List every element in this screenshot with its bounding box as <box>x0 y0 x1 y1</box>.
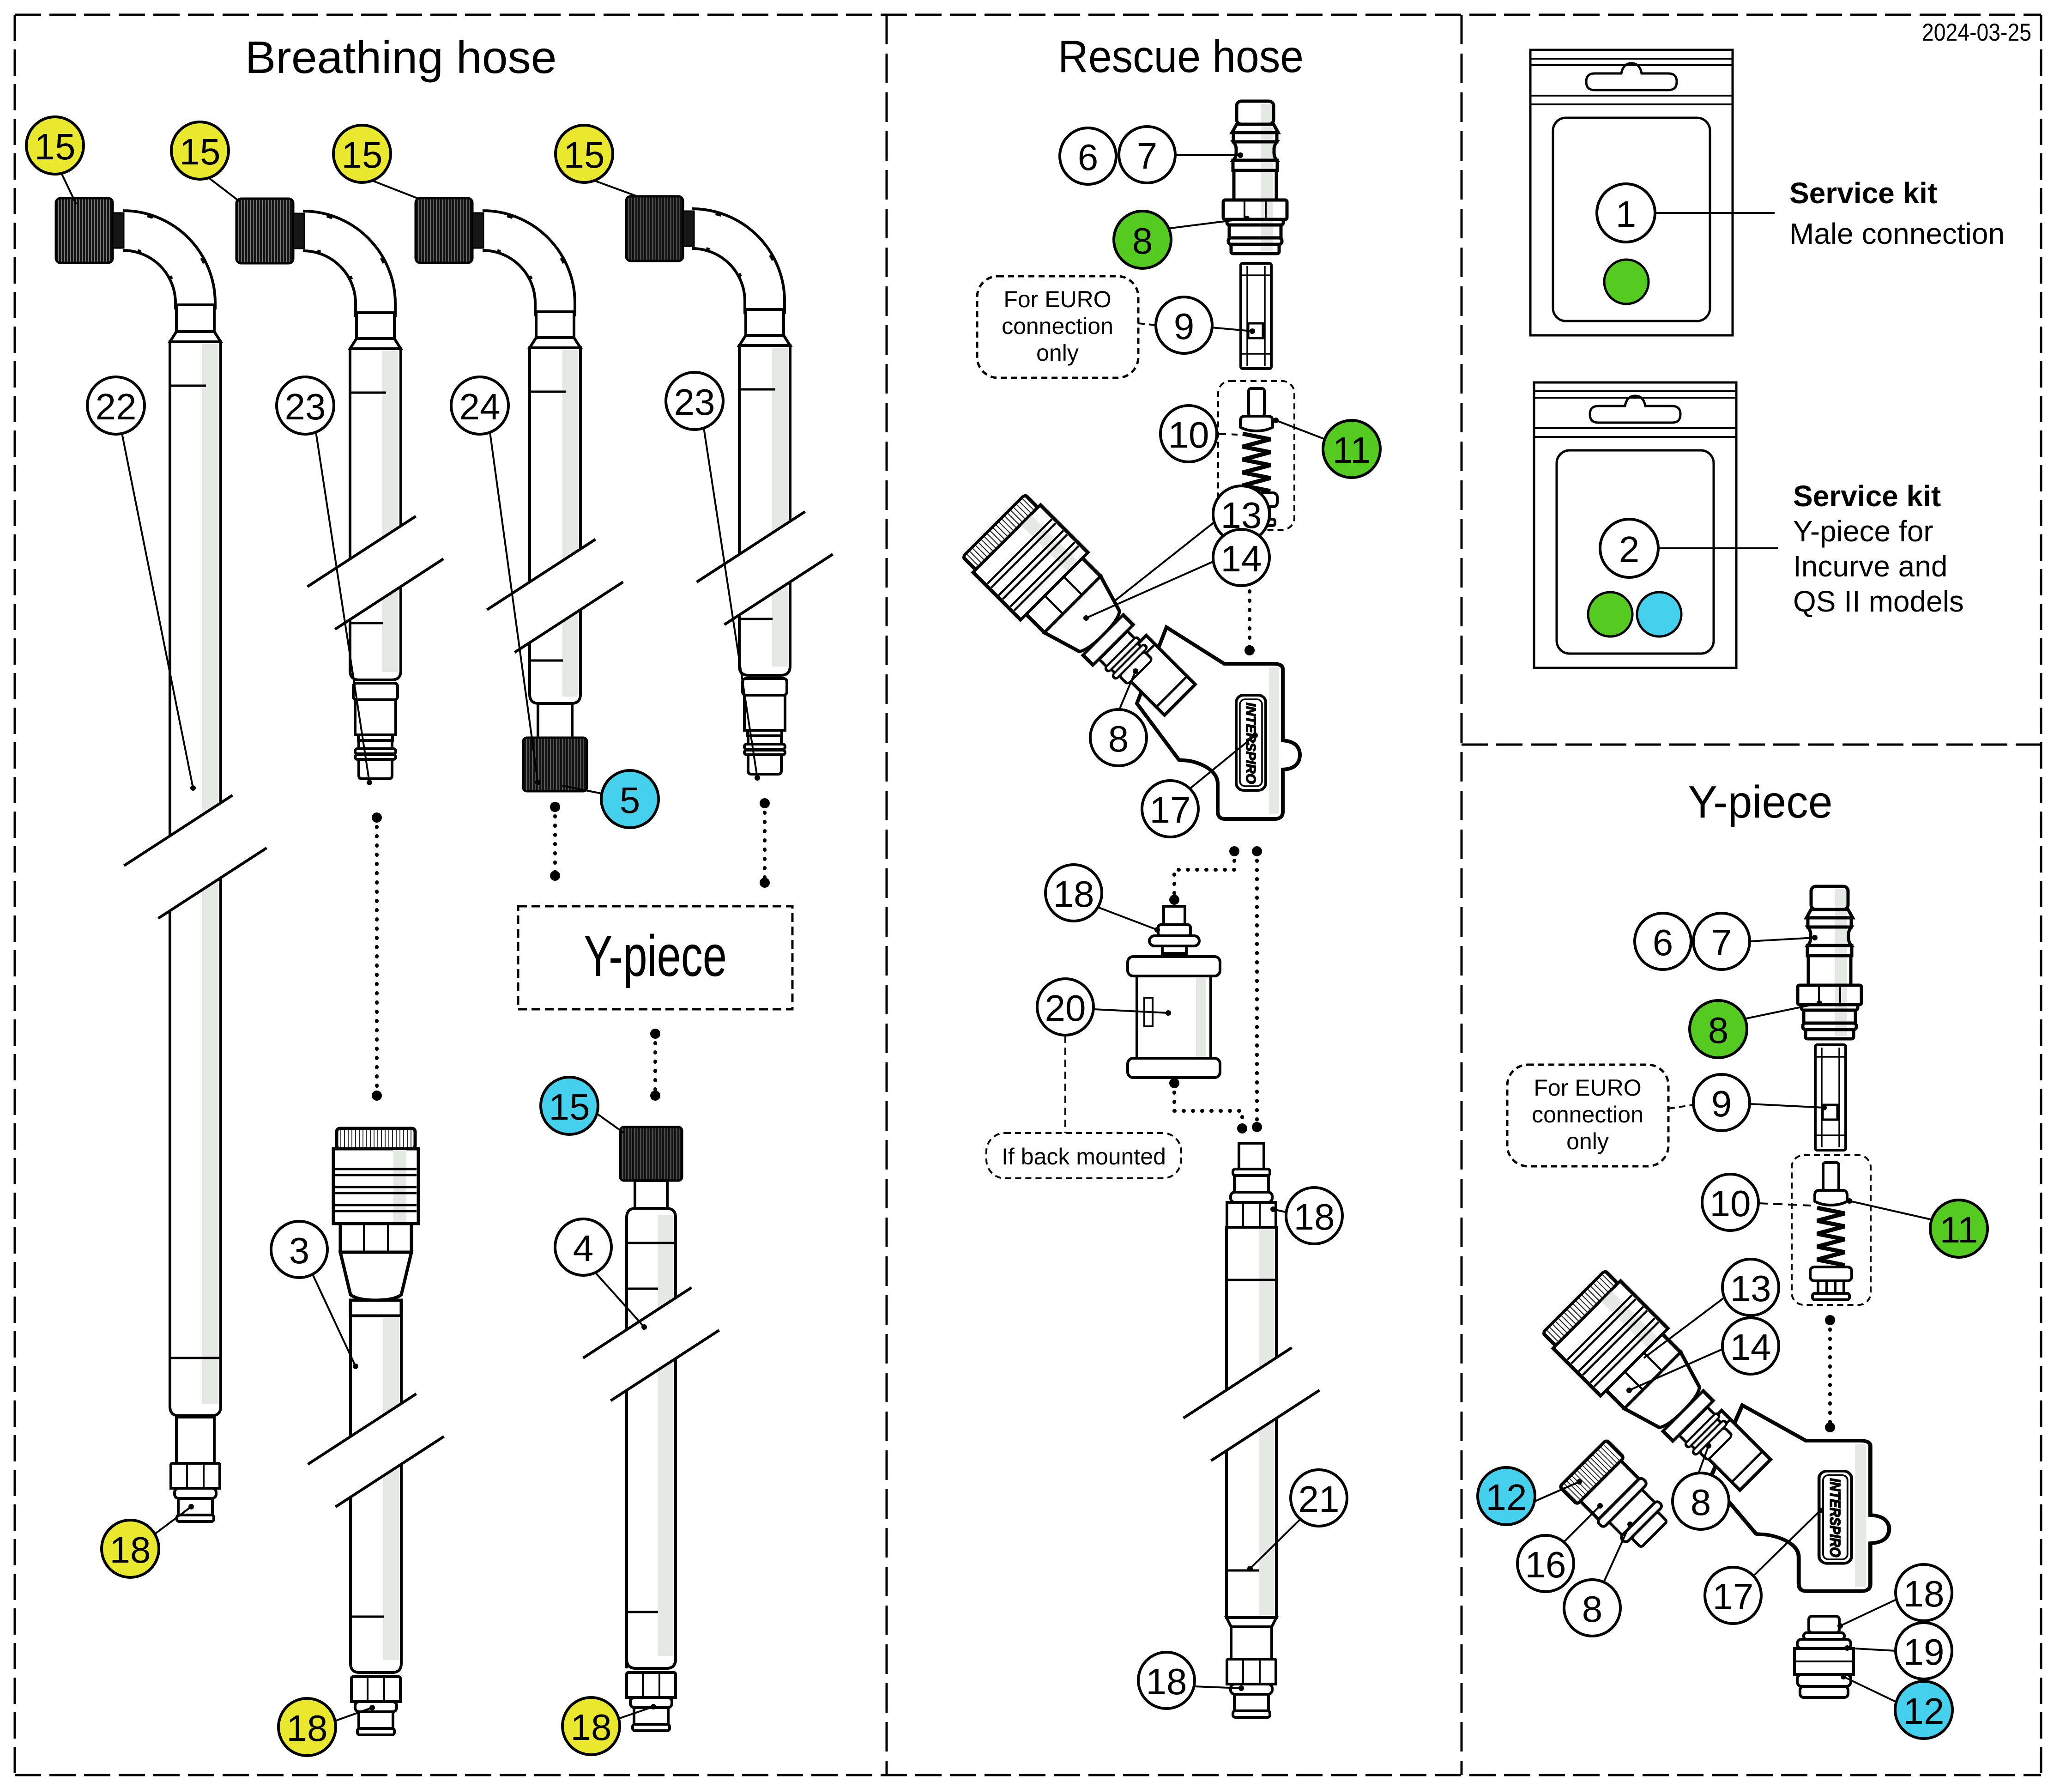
svg-text:23: 23 <box>674 382 715 423</box>
svg-text:15: 15 <box>35 126 76 167</box>
svg-text:18: 18 <box>1146 1661 1187 1702</box>
svg-text:7: 7 <box>1711 922 1732 963</box>
svg-text:Rescue hose: Rescue hose <box>1058 31 1304 82</box>
svg-text:18: 18 <box>571 1707 612 1748</box>
svg-text:18: 18 <box>1903 1573 1945 1614</box>
svg-text:5: 5 <box>620 780 640 821</box>
svg-text:Service kit: Service kit <box>1789 176 1937 210</box>
svg-text:8: 8 <box>1132 220 1153 261</box>
svg-text:14: 14 <box>1221 538 1262 579</box>
svg-text:15: 15 <box>342 134 383 176</box>
svg-text:12: 12 <box>1486 1477 1527 1518</box>
svg-text:only: only <box>1036 340 1079 366</box>
svg-text:18: 18 <box>1053 873 1094 915</box>
svg-text:Y-piece: Y-piece <box>1688 776 1833 827</box>
svg-text:Y-piece: Y-piece <box>584 923 727 988</box>
svg-text:14: 14 <box>1730 1327 1771 1368</box>
svg-text:22: 22 <box>96 386 137 427</box>
svg-text:15: 15 <box>549 1086 590 1127</box>
svg-text:Y-piece for: Y-piece for <box>1793 515 1933 548</box>
svg-text:17: 17 <box>1713 1576 1754 1617</box>
svg-text:23: 23 <box>285 386 326 427</box>
svg-text:9: 9 <box>1711 1083 1732 1124</box>
svg-text:11: 11 <box>1939 1209 1978 1250</box>
svg-text:8: 8 <box>1582 1588 1603 1630</box>
svg-text:21: 21 <box>1299 1479 1340 1520</box>
svg-text:4: 4 <box>573 1228 594 1269</box>
svg-text:15: 15 <box>180 131 221 172</box>
svg-text:13: 13 <box>1730 1268 1771 1309</box>
svg-text:11: 11 <box>1332 430 1371 471</box>
svg-text:16: 16 <box>1525 1544 1566 1585</box>
svg-text:7: 7 <box>1137 135 1158 176</box>
svg-text:connection: connection <box>1002 313 1113 339</box>
svg-text:3: 3 <box>289 1230 310 1271</box>
svg-text:24: 24 <box>459 386 501 427</box>
svg-text:20: 20 <box>1045 988 1086 1029</box>
svg-text:only: only <box>1566 1128 1609 1154</box>
svg-text:8: 8 <box>1708 1010 1729 1051</box>
svg-text:17: 17 <box>1150 789 1191 830</box>
svg-text:Service kit: Service kit <box>1793 479 1941 513</box>
svg-text:2024-03-25: 2024-03-25 <box>1922 19 2031 46</box>
svg-text:For EURO: For EURO <box>1534 1075 1641 1101</box>
svg-text:10: 10 <box>1710 1183 1751 1224</box>
svg-text:6: 6 <box>1653 922 1673 963</box>
svg-text:18: 18 <box>110 1529 151 1570</box>
svg-text:1: 1 <box>1616 194 1637 235</box>
svg-text:QS II models: QS II models <box>1793 585 1964 618</box>
svg-text:19: 19 <box>1903 1631 1945 1673</box>
svg-text:2: 2 <box>1619 529 1640 570</box>
svg-text:6: 6 <box>1078 137 1099 178</box>
svg-text:10: 10 <box>1168 414 1209 455</box>
svg-text:15: 15 <box>564 134 605 176</box>
svg-text:8: 8 <box>1108 718 1129 759</box>
svg-text:18: 18 <box>287 1708 328 1749</box>
svg-text:18: 18 <box>1294 1196 1335 1237</box>
svg-text:For EURO: For EURO <box>1003 286 1111 312</box>
svg-text:If back mounted: If back mounted <box>1002 1144 1166 1170</box>
svg-text:Breathing hose: Breathing hose <box>245 32 557 83</box>
svg-text:12: 12 <box>1903 1691 1945 1732</box>
svg-text:Male connection: Male connection <box>1789 217 2005 250</box>
svg-text:Incurve and: Incurve and <box>1793 550 1947 583</box>
svg-text:9: 9 <box>1174 306 1195 347</box>
svg-text:connection: connection <box>1532 1102 1643 1127</box>
svg-text:8: 8 <box>1691 1482 1711 1523</box>
